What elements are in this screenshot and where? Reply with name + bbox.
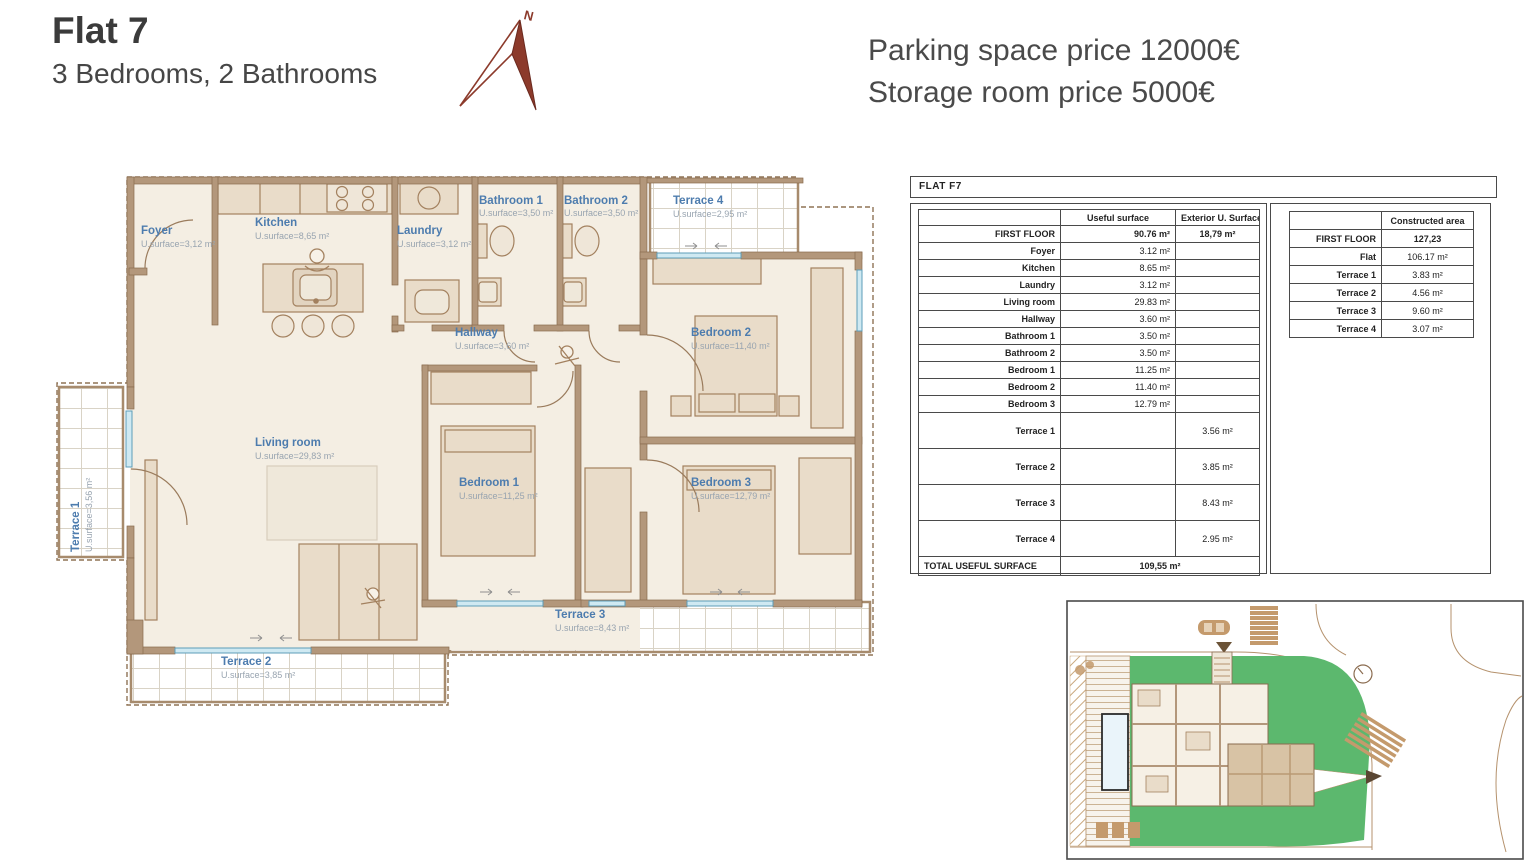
room-label-terrace2: Terrace 2 (221, 656, 271, 668)
table-row: Terrace 38.43 m² (919, 485, 1260, 521)
site-plan (1066, 600, 1524, 860)
wardrobe (431, 372, 531, 404)
table-row: Terrace 23.85 m² (919, 449, 1260, 485)
room-label-bedroom2: Bedroom 2 (691, 327, 751, 339)
room-surface-terrace3: U.surface=8,43 m² (555, 623, 629, 633)
room-surface-terrace4: U.surface=2,95 m² (673, 209, 747, 219)
room-label-laundry: Laundry (397, 225, 443, 237)
table-row: Terrace 42.95 m² (919, 521, 1260, 557)
toilet-icon (477, 224, 514, 258)
room-surface-bathroom2: U.surface=3,50 m² (564, 208, 638, 218)
table-row: Living room29.83 m² (919, 294, 1260, 311)
toilet-icon (562, 224, 599, 258)
table-row: Terrace 39.60 m² (1290, 302, 1474, 320)
room-label-bathroom2: Bathroom 2 (564, 195, 628, 207)
price-block: Parking space price 12000€ Storage room … (868, 30, 1240, 114)
room-label-bathroom1: Bathroom 1 (479, 195, 544, 207)
window (589, 601, 625, 606)
car-icon (1198, 620, 1230, 635)
page-title: Flat 7 (52, 10, 149, 52)
table-row: FIRST FLOOR90.76 m²18,79 m² (919, 226, 1260, 243)
site-squares (1096, 822, 1140, 838)
north-arrow-icon: N (452, 6, 552, 121)
room-label-kitchen: Kitchen (255, 217, 297, 229)
window (657, 253, 741, 258)
room-surface-bedroom3: U.surface=12,79 m² (691, 491, 770, 501)
constructed-area-table-box: Constructed areaFIRST FLOOR127,23Flat106… (1270, 203, 1491, 574)
room-surface-bedroom1: U.surface=11,25 m² (459, 491, 538, 501)
room-label-terrace4: Terrace 4 (673, 195, 724, 207)
room-surface-kitchen: U.surface=8,65 m² (255, 231, 329, 241)
surface-table-title: FLAT F7 (910, 176, 1497, 198)
table-row: Bedroom 211.40 m² (919, 379, 1260, 396)
table-row: Laundry3.12 m² (919, 277, 1260, 294)
room-surface-bathroom1: U.surface=3,50 m² (479, 208, 553, 218)
room-label-bedroom3: Bedroom 3 (691, 477, 751, 489)
page: Flat 7 3 Bedrooms, 2 Bathrooms Parking s… (0, 0, 1533, 862)
window (687, 601, 773, 606)
room-label-hallway: Hallway (455, 327, 498, 339)
table-row: Bedroom 111.25 m² (919, 362, 1260, 379)
table-row: Terrace 13.83 m² (1290, 266, 1474, 284)
useful-surface-table-box: Useful surfaceExterior U. SurfaceFIRST F… (910, 203, 1267, 574)
closet (585, 468, 631, 592)
useful-surface-table: Useful surfaceExterior U. SurfaceFIRST F… (918, 209, 1260, 576)
table-header-row: Constructed area (1290, 212, 1474, 230)
pool (1102, 714, 1128, 790)
sofa (299, 544, 417, 640)
room-surface-bedroom2: U.surface=11,40 m² (691, 341, 770, 351)
table-row: Kitchen8.65 m² (919, 260, 1260, 277)
table-header-row: Useful surfaceExterior U. Surface (919, 210, 1260, 226)
room-surface-foyer: U.surface=3,12 m² (141, 239, 215, 249)
constructed-area-table: Constructed areaFIRST FLOOR127,23Flat106… (1289, 211, 1474, 338)
room-label-foyer: Foyer (141, 225, 173, 237)
floor-plan: Foyer U.surface=3,12 m² Kitchen U.surfac… (55, 168, 875, 713)
parking-price-text: Parking space price 12000€ (868, 30, 1240, 72)
room-surface-laundry: U.surface=3,12 m² (397, 239, 471, 249)
room-surface-terrace2: U.surface=3,85 m² (221, 670, 295, 680)
storage-price-text: Storage room price 5000€ (868, 72, 1240, 114)
page-subtitle: 3 Bedrooms, 2 Bathrooms (52, 58, 377, 90)
table-row: Terrace 24.56 m² (1290, 284, 1474, 302)
table-row: Foyer3.12 m² (919, 243, 1260, 260)
room-surface-living: U.surface=29,83 m² (255, 451, 334, 461)
wardrobe (811, 268, 843, 428)
room-surface-terrace1: U.surface=3,56 m² (84, 478, 94, 552)
media-unit (145, 460, 157, 620)
window (126, 411, 132, 467)
wardrobe (799, 458, 851, 554)
table-row: Bedroom 312.79 m² (919, 396, 1260, 413)
site-hatched-strip (1070, 656, 1086, 846)
north-label: N (522, 7, 535, 24)
window (857, 270, 862, 331)
window (457, 601, 543, 606)
table-row: FIRST FLOOR127,23 (1290, 230, 1474, 248)
room-label-living: Living room (255, 437, 321, 449)
table-total-row: TOTAL USEFUL SURFACE109,55 m² (919, 557, 1260, 576)
table-row: Terrace 43.07 m² (1290, 320, 1474, 338)
room-surface-hallway: U.surface=3,60 m² (455, 341, 529, 351)
room-label-bedroom1: Bedroom 1 (459, 477, 520, 489)
rug (267, 466, 377, 540)
table-row: Bathroom 23.50 m² (919, 345, 1260, 362)
window (175, 648, 311, 653)
room-label-terrace1: Terrace 1 (70, 501, 82, 552)
table-row: Bathroom 13.50 m² (919, 328, 1260, 345)
table-row: Flat106.17 m² (1290, 248, 1474, 266)
table-row: Terrace 13.56 m² (919, 413, 1260, 449)
table-row: Hallway3.60 m² (919, 311, 1260, 328)
wardrobe (653, 258, 761, 284)
room-label-terrace3: Terrace 3 (555, 609, 605, 621)
stove-icon (327, 184, 387, 212)
